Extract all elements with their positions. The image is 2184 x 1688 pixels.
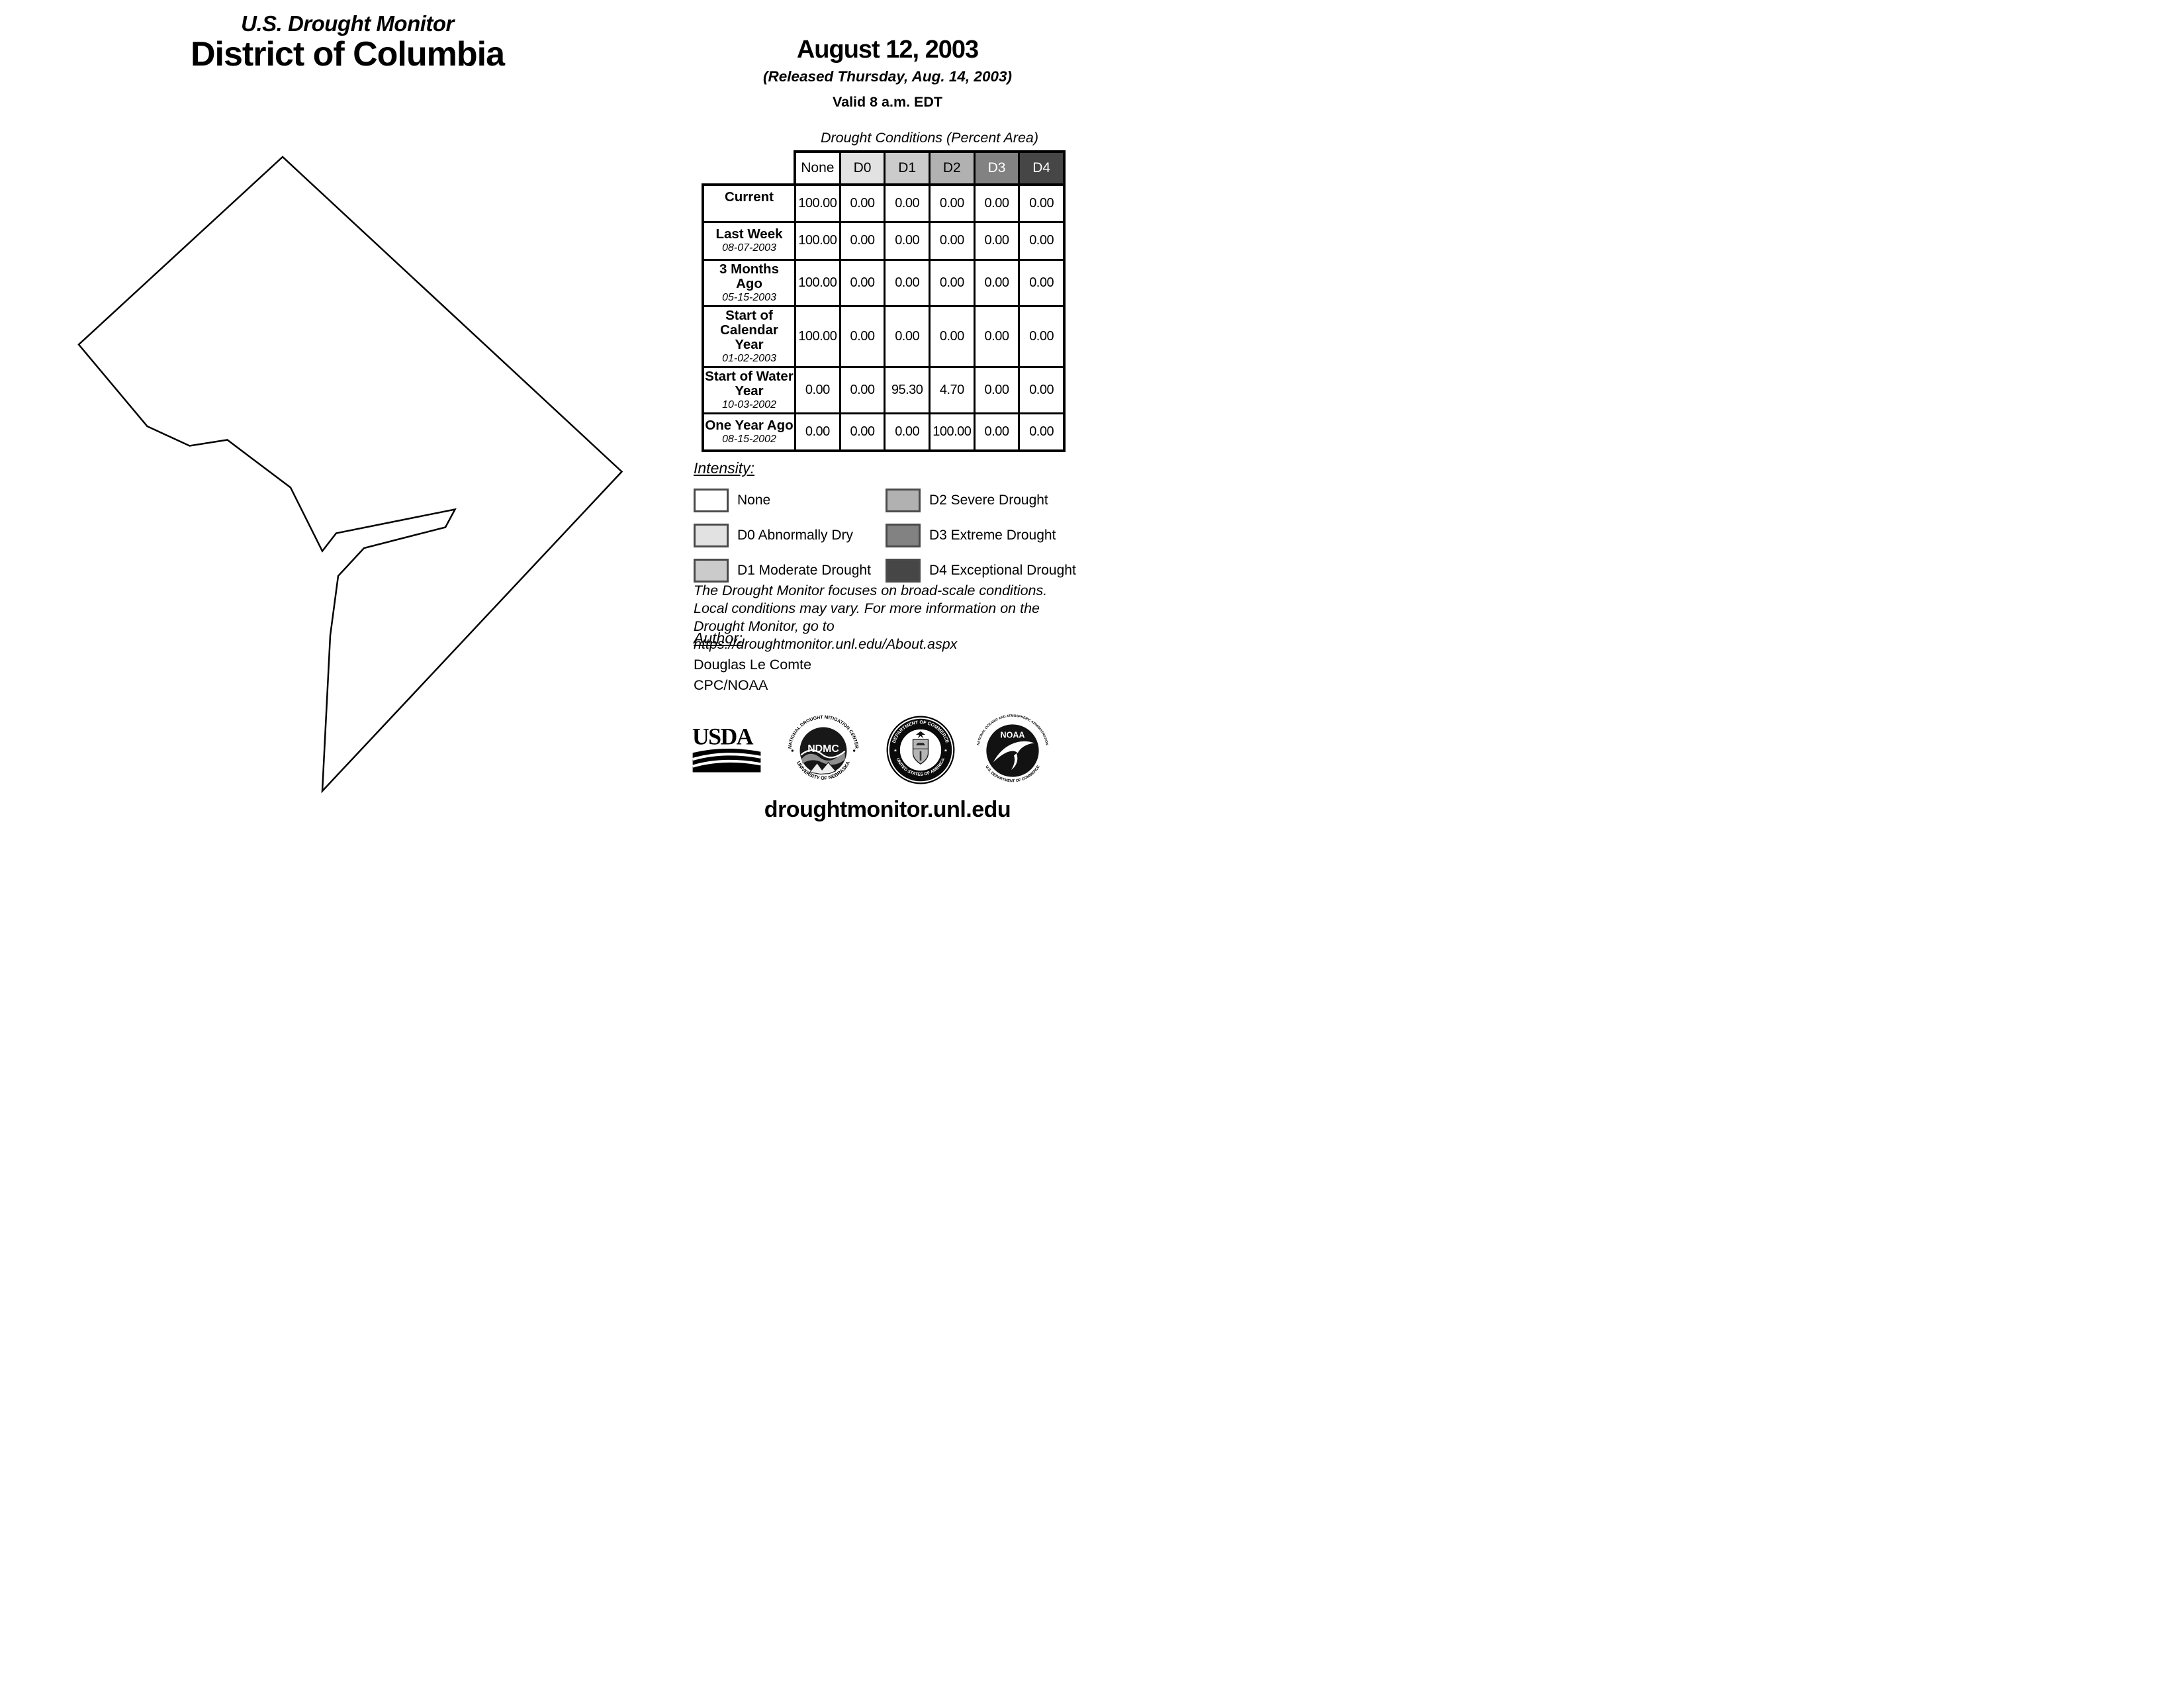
table-cell: 0.00 xyxy=(886,307,929,366)
drought-table-header: None D0 D1 D2 D3 D4 xyxy=(794,150,1066,186)
table-cell: 100.00 xyxy=(796,223,839,258)
column-header-d4: D4 xyxy=(1020,153,1063,183)
table-cell: 0.00 xyxy=(1020,368,1063,412)
author-name: Douglas Le Comte xyxy=(694,657,811,673)
commerce-star-left: ★ xyxy=(893,749,897,753)
table-cell: 0.00 xyxy=(931,186,974,221)
row-label: Last Week xyxy=(715,227,782,242)
region-title: District of Columbia xyxy=(33,36,662,73)
table-cell: 0.00 xyxy=(886,223,929,258)
row-date: 10-03-2002 xyxy=(722,399,776,411)
commerce-lighthouse xyxy=(920,751,922,761)
table-cell: 0.00 xyxy=(841,186,884,221)
table-cell: 0.00 xyxy=(886,186,929,221)
legend-item-d3: D3 Extreme Drought xyxy=(886,524,1056,547)
row-label: Start of Calendar Year xyxy=(705,308,794,352)
website-url: droughtmonitor.unl.edu xyxy=(685,797,1090,823)
disclaimer-line: Local conditions may vary. For more info… xyxy=(694,600,1040,616)
release-date: (Released Thursday, Aug. 14, 2003) xyxy=(685,68,1090,85)
table-cell: 95.30 xyxy=(886,368,929,412)
table-cell: 0.00 xyxy=(976,186,1019,221)
legend-label: D0 Abnormally Dry xyxy=(737,528,853,543)
legend-label: None xyxy=(737,492,770,508)
table-cell: 100.00 xyxy=(931,414,974,449)
legend-item-none: None xyxy=(694,489,770,512)
row-date: 08-15-2002 xyxy=(722,433,776,445)
legend-label: D4 Exceptional Drought xyxy=(929,563,1076,579)
row-date: 08-07-2003 xyxy=(722,242,776,254)
row-label: 3 Months Ago xyxy=(705,262,794,291)
table-cell: 0.00 xyxy=(1020,307,1063,366)
table-cell: 0.00 xyxy=(841,261,884,305)
usda-wordmark: USDA xyxy=(692,723,754,749)
table-cell: 0.00 xyxy=(841,414,884,449)
commerce-star-right: ★ xyxy=(944,749,948,753)
table-cell: 100.00 xyxy=(796,186,839,221)
legend-label: D1 Moderate Drought xyxy=(737,563,871,579)
table-cell: 0.00 xyxy=(976,307,1019,366)
table-cell: 0.00 xyxy=(886,261,929,305)
ndmc-logo: NATIONAL DROUGHT MITIGATION CENTER UNIVE… xyxy=(786,714,860,788)
noaa-center-text: NOAA xyxy=(1001,731,1025,740)
column-header-d3: D3 xyxy=(976,153,1019,183)
noaa-logo: NATIONAL OCEANIC AND ATMOSPHERIC ADMINIS… xyxy=(974,712,1051,789)
drought-monitor-report: U.S. Drought Monitor District of Columbi… xyxy=(0,0,1092,844)
d0-swatch xyxy=(694,524,729,547)
usda-logo: USDA xyxy=(692,723,762,776)
legend-item-d0: D0 Abnormally Dry xyxy=(694,524,853,547)
dc-boundary-outline xyxy=(79,157,622,791)
row-date: 05-15-2003 xyxy=(722,291,776,304)
intensity-heading: Intensity: xyxy=(694,459,754,477)
table-cell: 0.00 xyxy=(931,307,974,366)
row-label: Current xyxy=(725,190,774,205)
table-cell: 0.00 xyxy=(796,368,839,412)
drought-conditions-table: Current 100.00 0.00 0.00 0.00 0.00 0.00 … xyxy=(702,183,1066,452)
table-caption: Drought Conditions (Percent Area) xyxy=(794,130,1066,146)
author-heading: Author: xyxy=(694,630,743,647)
row-header-3-months-ago: 3 Months Ago 05-15-2003 xyxy=(704,261,794,305)
table-cell: 0.00 xyxy=(1020,223,1063,258)
d3-swatch xyxy=(886,524,921,547)
table-cell: 0.00 xyxy=(976,414,1019,449)
table-cell: 0.00 xyxy=(841,368,884,412)
d4-swatch xyxy=(886,559,921,583)
legend-item-d1: D1 Moderate Drought xyxy=(694,559,871,583)
valid-time: Valid 8 a.m. EDT xyxy=(685,94,1090,111)
title-block: U.S. Drought Monitor District of Columbi… xyxy=(33,12,662,73)
row-header-start-water-year: Start of Water Year 10-03-2002 xyxy=(704,368,794,412)
table-cell: 0.00 xyxy=(841,223,884,258)
dc-state-map xyxy=(50,132,668,794)
table-cell: 100.00 xyxy=(796,307,839,366)
d2-swatch xyxy=(886,489,921,512)
row-label: One Year Ago xyxy=(705,418,793,433)
author-org: CPC/NOAA xyxy=(694,677,768,694)
legend-item-d4: D4 Exceptional Drought xyxy=(886,559,1076,583)
dc-map-svg xyxy=(50,132,668,794)
table-cell: 0.00 xyxy=(1020,261,1063,305)
d1-swatch xyxy=(694,559,729,583)
row-header-last-week: Last Week 08-07-2003 xyxy=(704,223,794,258)
legend-label: D3 Extreme Drought xyxy=(929,528,1056,543)
column-header-none: None xyxy=(796,153,839,183)
table-cell: 0.00 xyxy=(1020,414,1063,449)
table-cell: 0.00 xyxy=(1020,186,1063,221)
row-header-current: Current xyxy=(704,186,794,221)
commerce-seal-logo: DEPARTMENT OF COMMERCE UNITED STATES OF … xyxy=(886,715,956,785)
none-swatch xyxy=(694,489,729,512)
column-header-d1: D1 xyxy=(886,153,929,183)
ndmc-center-text: NDMC xyxy=(807,743,839,755)
disclaimer-line: The Drought Monitor focuses on broad-sca… xyxy=(694,583,1047,598)
table-cell: 0.00 xyxy=(976,223,1019,258)
legend-item-d2: D2 Severe Drought xyxy=(886,489,1048,512)
table-cell: 0.00 xyxy=(976,368,1019,412)
row-date: 01-02-2003 xyxy=(722,352,776,365)
row-header-one-year-ago: One Year Ago 08-15-2002 xyxy=(704,414,794,449)
table-cell: 0.00 xyxy=(931,223,974,258)
table-cell: 100.00 xyxy=(796,261,839,305)
column-header-d0: D0 xyxy=(841,153,884,183)
table-cell: 0.00 xyxy=(796,414,839,449)
table-cell: 0.00 xyxy=(931,261,974,305)
table-cell: 0.00 xyxy=(976,261,1019,305)
disclaimer-text: The Drought Monitor focuses on broad-sca… xyxy=(694,582,1084,653)
map-date: August 12, 2003 xyxy=(685,36,1090,64)
row-label: Start of Water Year xyxy=(705,369,794,399)
column-header-d2: D2 xyxy=(931,153,974,183)
table-cell: 4.70 xyxy=(931,368,974,412)
table-cell: 0.00 xyxy=(886,414,929,449)
row-header-start-calendar-year: Start of Calendar Year 01-02-2003 xyxy=(704,307,794,366)
legend-label: D2 Severe Drought xyxy=(929,492,1048,508)
report-title: U.S. Drought Monitor xyxy=(33,12,662,36)
table-cell: 0.00 xyxy=(841,307,884,366)
